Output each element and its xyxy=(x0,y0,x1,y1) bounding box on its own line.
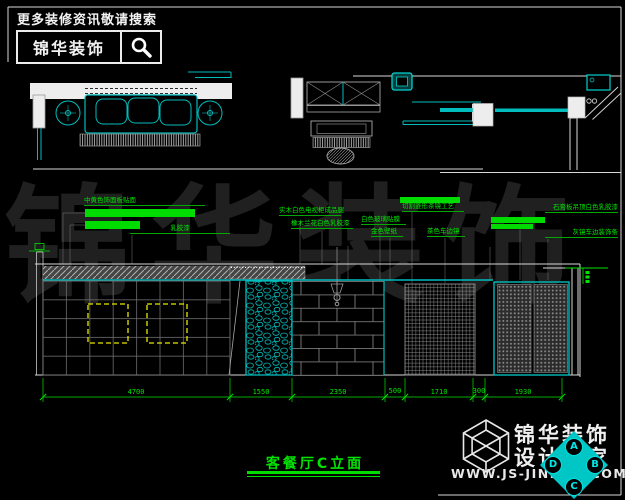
dimension-chain xyxy=(40,378,565,402)
ceiling-hatch-band xyxy=(43,266,230,279)
dimension-value: 300 xyxy=(473,388,486,395)
plan-column xyxy=(33,95,45,128)
elevation-left-column xyxy=(37,252,44,375)
material-callout: 金色壁纸 xyxy=(371,228,403,237)
search-icon xyxy=(120,32,160,62)
dimension-value: 1550 xyxy=(253,389,270,396)
perforated-panel-left xyxy=(498,285,532,373)
marker-letter-right: B xyxy=(591,460,599,470)
tile-grid-wall xyxy=(43,281,230,375)
plan-sofa xyxy=(85,95,197,133)
sloped-edge xyxy=(229,281,240,375)
material-callout: 白色玻璃贴膜 xyxy=(361,216,406,225)
mosaic-stone-column xyxy=(246,281,292,375)
material-callout: 乳胶漆 xyxy=(130,225,230,234)
highlight-bar xyxy=(85,209,195,217)
material-callout: 茶色车边镜 xyxy=(427,228,465,237)
plan-rug xyxy=(327,148,354,164)
plan-sofa-group xyxy=(30,72,232,160)
marker-letter-left: D xyxy=(549,460,557,470)
material-callout: 切割菱形茶镜工艺 xyxy=(402,203,464,212)
material-callout: 石膏板吊顶白色乳胶漆 xyxy=(545,204,618,213)
material-callout: 橡木兰花白色乳胶漆 xyxy=(291,220,353,229)
title-underline-thin xyxy=(247,476,380,477)
drawing-title: 客餐厅C立面 xyxy=(266,453,364,473)
dimension-value: 500 xyxy=(389,388,402,395)
magnifier-glyph xyxy=(130,36,152,58)
highlight-bar xyxy=(491,224,533,229)
marker-letter-bottom: C xyxy=(570,482,577,492)
level-mark-right xyxy=(565,268,608,284)
header-slogan: 更多装修资讯敬请搜索 xyxy=(17,9,157,28)
plan-sofa-front-hatch xyxy=(80,134,200,146)
brand-search-box: 锦华装饰 xyxy=(16,30,162,64)
plan-door-group xyxy=(440,75,621,170)
elevation-drawing xyxy=(29,244,608,378)
title-underline-thick xyxy=(247,471,380,474)
material-callout: 中黄色饰面板贴面 xyxy=(84,197,205,206)
marker-letter-top: A xyxy=(570,442,578,452)
highlight-bar xyxy=(491,217,545,223)
dimension-value: 4700 xyxy=(128,389,145,396)
dimension-value: 2350 xyxy=(330,389,347,396)
brand-name: 锦华装饰 xyxy=(18,32,120,62)
perforated-panel-right xyxy=(534,285,568,373)
material-callout: 灰镜车边装饰条 xyxy=(545,229,618,238)
material-callout: 实木白色电视柜成品腿 xyxy=(279,207,341,216)
dimension-value: 1930 xyxy=(515,389,532,396)
mesh-grid-panel xyxy=(405,284,475,375)
dimension-value: 1710 xyxy=(431,389,448,396)
cad-screenshot: 锦华装饰 更多装修资讯敬请搜索 锦华装饰 xyxy=(0,0,625,500)
